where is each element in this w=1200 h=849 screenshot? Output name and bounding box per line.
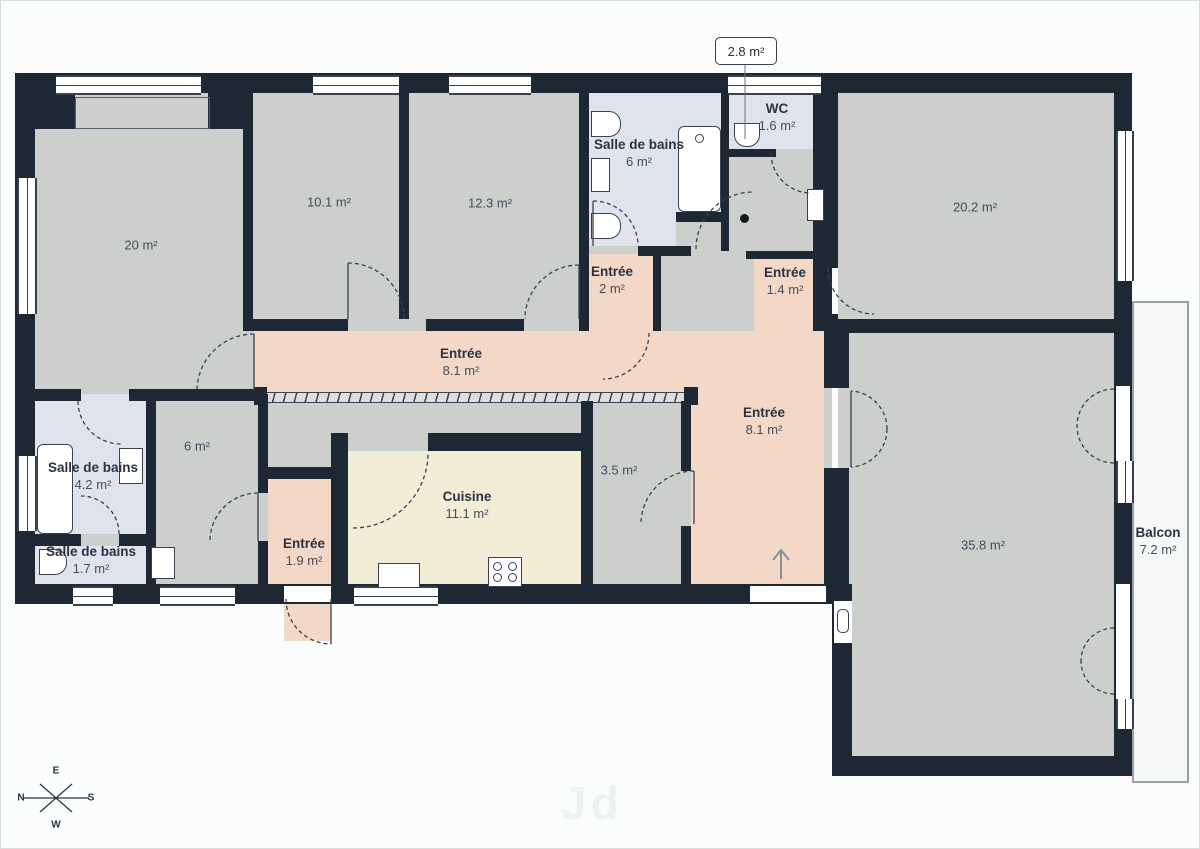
compass-letter-east: E: [53, 766, 60, 777]
wall: [258, 541, 268, 584]
kitchen-sink-icon: [378, 563, 420, 588]
room-label-sdb-6: Salle de bains6 m²: [594, 136, 684, 170]
window: [73, 586, 113, 606]
room-label-entree-8-1-h: Entrée8.1 m²: [440, 345, 482, 379]
window-pane: [160, 596, 235, 597]
closet-outline: [75, 97, 210, 129]
toilet-icon: [734, 123, 760, 147]
glazed-partition: [254, 392, 684, 403]
wall: [824, 331, 849, 388]
room-area: 35.8 m²: [961, 538, 1005, 555]
window: [728, 75, 821, 95]
window: [1116, 131, 1134, 281]
faucet-icon: [695, 134, 704, 143]
burner-icon: [493, 562, 502, 571]
room-area: 1.9 m²: [283, 552, 325, 569]
wall: [581, 401, 593, 586]
room-label-10-1: 10.1 m²: [307, 195, 351, 212]
room-name: Cuisine: [443, 488, 492, 506]
wall: [653, 246, 661, 331]
room-area: 4.2 m²: [48, 476, 138, 493]
wall: [258, 467, 331, 479]
wall: [729, 149, 776, 157]
cabinet-icon: [807, 189, 824, 221]
room-area: 11.1 m²: [443, 505, 492, 522]
area-badge: 2.8 m²: [715, 37, 777, 65]
room-label-entree-2: Entrée2 m²: [591, 263, 633, 297]
window: [1116, 699, 1134, 729]
window-pane: [1125, 699, 1126, 729]
wall: [821, 73, 838, 268]
wall: [208, 93, 253, 129]
watermark: Jd: [561, 776, 623, 830]
window: [17, 456, 37, 531]
room-area: 6 m²: [594, 153, 684, 170]
room-label-sdb-4-2: Salle de bains4.2 m²: [48, 459, 138, 493]
room-label-3-5: 3.5 m²: [601, 463, 638, 480]
stove-icon: [488, 557, 522, 587]
room-label-entree-8-1-v: Entrée8.1 m²: [743, 404, 785, 438]
room-label-12-3: 12.3 m²: [468, 196, 512, 213]
room-label-35-8: 35.8 m²: [961, 538, 1005, 555]
room-label-20: 20 m²: [124, 238, 157, 255]
window-pane: [354, 596, 438, 597]
room-area: 7.2 m²: [1135, 541, 1180, 558]
door-opening: [1116, 584, 1130, 699]
sink-icon: [151, 547, 175, 579]
room-name: Entrée: [764, 264, 806, 282]
room-area: 20 m²: [124, 238, 157, 255]
wall: [681, 526, 691, 584]
door-opening: [1116, 386, 1130, 463]
room-area: 10.1 m²: [307, 195, 351, 212]
room-name: Salle de bains: [594, 136, 684, 154]
window-pane: [728, 85, 821, 86]
toilet-icon: [591, 213, 621, 239]
room-label-entree-1-4: Entrée1.4 m²: [764, 264, 806, 298]
window: [449, 75, 531, 95]
room-label-entree-1-9: Entrée1.9 m²: [283, 535, 325, 569]
room-name: Entrée: [283, 535, 325, 553]
room-name: Entrée: [591, 263, 633, 281]
wall-bottom-right: [849, 756, 1132, 776]
burner-icon: [508, 562, 517, 571]
window: [1116, 461, 1134, 503]
room-area: 8.1 m²: [743, 421, 785, 438]
main-entrance-opening: [750, 586, 826, 602]
room-area: 20.2 m²: [953, 200, 997, 217]
wall: [35, 93, 75, 129]
window-pane: [27, 178, 28, 314]
wall: [399, 93, 409, 319]
wall: [426, 319, 524, 331]
room-label-20-2: 20.2 m²: [953, 200, 997, 217]
wall: [35, 389, 81, 401]
wall: [428, 433, 581, 451]
window-pane: [1125, 461, 1126, 503]
room-label-cuisine: Cuisine11.1 m²: [443, 488, 492, 522]
room-label-6: 6 m²: [184, 439, 210, 456]
room-name: Entrée: [440, 345, 482, 363]
window: [313, 75, 399, 95]
wall: [824, 468, 849, 584]
burner-icon: [493, 573, 502, 582]
compass-icon: [23, 784, 89, 812]
room-area: 1.4 m²: [764, 281, 806, 298]
burner-icon: [508, 573, 517, 582]
compass-letter-north: N: [17, 793, 24, 804]
window-pane: [73, 596, 113, 597]
window-pane: [313, 85, 399, 86]
wall: [638, 246, 691, 256]
room-label-sdb-1-7: Salle de bains1.7 m²: [46, 543, 136, 577]
window: [17, 178, 37, 314]
room-area: 1.7 m²: [46, 560, 136, 577]
toilet-icon: [591, 111, 621, 137]
window: [160, 586, 235, 606]
window-pane: [27, 456, 28, 531]
room-area: 1.6 m²: [759, 117, 796, 134]
wall: [838, 319, 1114, 333]
compass-letter-west: W: [51, 820, 60, 831]
zone-entree-v: [691, 331, 824, 584]
floor-plan: 20 m² 10.1 m² 12.3 m² Salle de bains6 m²…: [0, 0, 1200, 849]
right-block-floor: [838, 93, 1114, 756]
room-name: WC: [759, 100, 796, 118]
window-pane: [1125, 131, 1126, 281]
wall: [821, 314, 838, 331]
window: [56, 75, 201, 95]
room-area: 3.5 m²: [601, 463, 638, 480]
room-area: 8.1 m²: [440, 362, 482, 379]
wall: [331, 433, 348, 586]
room-area: 12.3 m²: [468, 196, 512, 213]
compass-letter-south: S: [88, 793, 95, 804]
room-label-wc: WC1.6 m²: [759, 100, 796, 134]
wall: [579, 93, 589, 331]
window-pane: [449, 85, 531, 86]
wall: [746, 251, 823, 259]
wall: [243, 319, 348, 331]
room-name: Entrée: [743, 404, 785, 422]
wall: [681, 401, 691, 471]
service-door-opening: [284, 586, 331, 602]
room-name: Salle de bains: [48, 459, 138, 477]
badge-label: 2.8 m²: [728, 44, 765, 59]
room-name: Balcon: [1135, 524, 1180, 542]
window-pane: [56, 85, 201, 86]
room-label-balcon: Balcon7.2 m²: [1135, 524, 1180, 558]
room-name: Salle de bains: [46, 543, 136, 561]
room-area: 2 m²: [591, 280, 633, 297]
window: [354, 586, 438, 606]
wall: [721, 93, 729, 251]
room-area: 6 m²: [184, 439, 210, 456]
point-marker: [740, 214, 749, 223]
door-leaf-closed: [837, 609, 849, 633]
